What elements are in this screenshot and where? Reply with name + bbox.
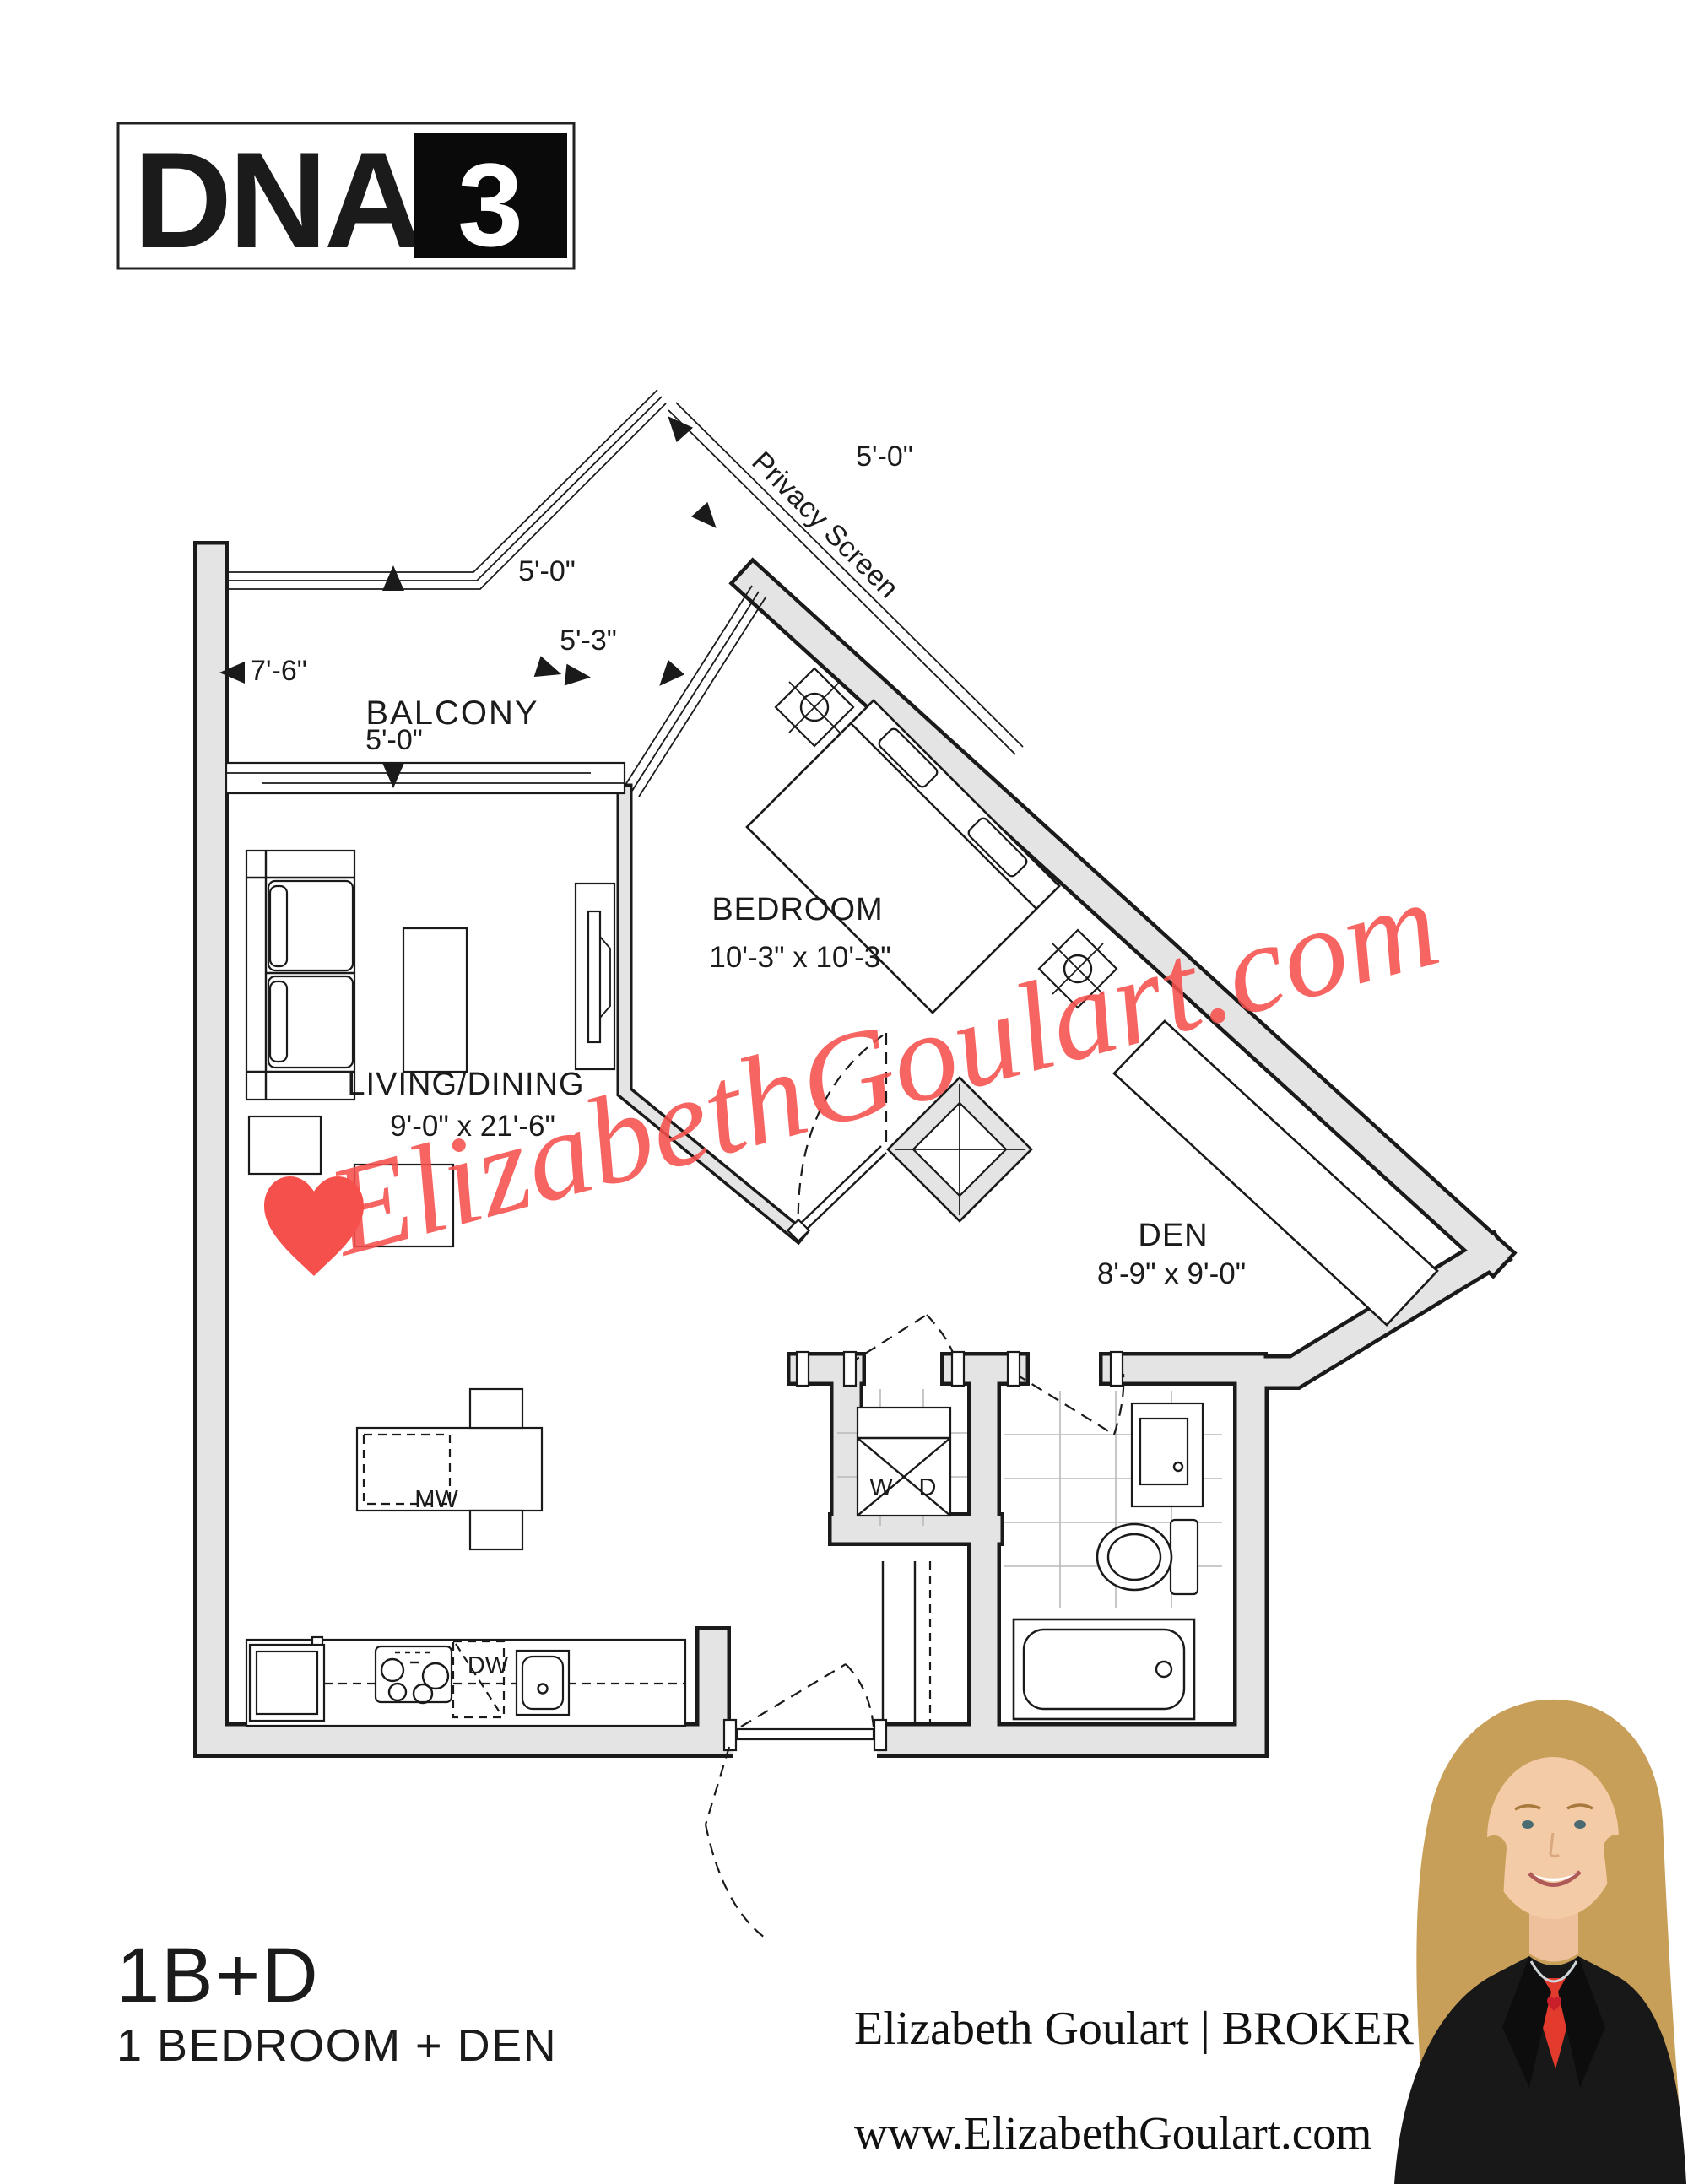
entry-door-swing xyxy=(741,1664,874,1727)
microwave-label: MW xyxy=(414,1486,458,1513)
door-jamb xyxy=(874,1720,886,1750)
sofa xyxy=(246,851,354,1100)
vanity-sink xyxy=(1132,1403,1203,1506)
logo-number: 3 xyxy=(457,138,523,271)
flyer-page: DNA 3 Privacy Screen BALCONY 5'-0" xyxy=(0,0,1688,2184)
unit-description: 1 BEDROOM + DEN xyxy=(116,2020,557,2071)
tv-console xyxy=(576,884,614,1069)
corridor-door-swing xyxy=(706,1747,765,1938)
dim-balcony-top-right: 5'-0" xyxy=(856,441,913,473)
logo-text: DNA xyxy=(133,124,419,277)
door-jamb xyxy=(724,1720,736,1750)
island: MW xyxy=(357,1428,542,1513)
fridge xyxy=(250,1637,324,1721)
footer: 1B+D 1 BEDROOM + DEN Elizabeth Goulart |… xyxy=(116,1933,1415,2159)
linen-closet xyxy=(883,1561,930,1725)
dining-chair xyxy=(470,1389,522,1428)
eye xyxy=(1522,1820,1534,1829)
kitchen: DW MW xyxy=(246,1389,685,1726)
broker-line: Elizabeth Goulart | BROKER xyxy=(854,2003,1415,2055)
dryer-label: D xyxy=(919,1474,937,1501)
broker-name: Elizabeth Goulart xyxy=(854,2003,1189,2055)
bedroom-label: BEDROOM xyxy=(711,892,883,927)
sofa-pillow xyxy=(270,981,287,1062)
dishwasher-label: DW xyxy=(468,1652,509,1679)
broker-separator: | xyxy=(1189,2003,1222,2055)
stove xyxy=(376,1646,452,1703)
dim-balcony-window: 5'-3" xyxy=(560,624,617,657)
kitchen-sink xyxy=(517,1651,569,1715)
toilet xyxy=(1097,1520,1198,1594)
dim-balcony-bottom: 5'-0" xyxy=(365,724,423,756)
dim-arrow-diag2 xyxy=(691,502,724,536)
dim-arrow-53b xyxy=(565,664,592,689)
dim-arrow-53c xyxy=(652,660,684,694)
dining-chair xyxy=(470,1511,522,1549)
bathtub xyxy=(1014,1619,1194,1719)
den-label: DEN xyxy=(1138,1218,1208,1253)
washer-label: W xyxy=(869,1474,893,1501)
broker-title: BROKER xyxy=(1222,2003,1415,2055)
broker-photo xyxy=(1394,1700,1686,2184)
balcony-railing xyxy=(226,390,657,572)
unit-code: 1B+D xyxy=(116,1933,320,2019)
floor-plan: Privacy Screen BALCONY 5'-0" 5'-0" 7'-6"… xyxy=(211,390,1492,1938)
dim-arrow-up xyxy=(382,565,404,591)
coffee-table xyxy=(403,928,467,1072)
dim-balcony-left: 7'-6" xyxy=(250,655,307,687)
dim-arrow-53a xyxy=(534,656,565,684)
entry xyxy=(706,1664,886,1938)
bathroom xyxy=(1004,1374,1222,1719)
bedroom-size: 10'-3" x 10'-3" xyxy=(709,941,890,974)
bedroom-window-wall xyxy=(625,586,766,797)
balcony-window-wall xyxy=(226,763,625,793)
website-link[interactable]: www.ElizabethGoulart.com xyxy=(854,2107,1371,2159)
eye xyxy=(1574,1820,1586,1829)
end-table xyxy=(249,1116,321,1174)
entry-door xyxy=(737,1729,874,1739)
sofa-pillow xyxy=(270,886,287,966)
dna3-logo: DNA 3 xyxy=(118,123,574,277)
door-jambs xyxy=(797,1352,1123,1386)
den-size: 8'-9" x 9'-0" xyxy=(1097,1257,1246,1290)
dim-balcony-top: 5'-0" xyxy=(518,555,576,587)
